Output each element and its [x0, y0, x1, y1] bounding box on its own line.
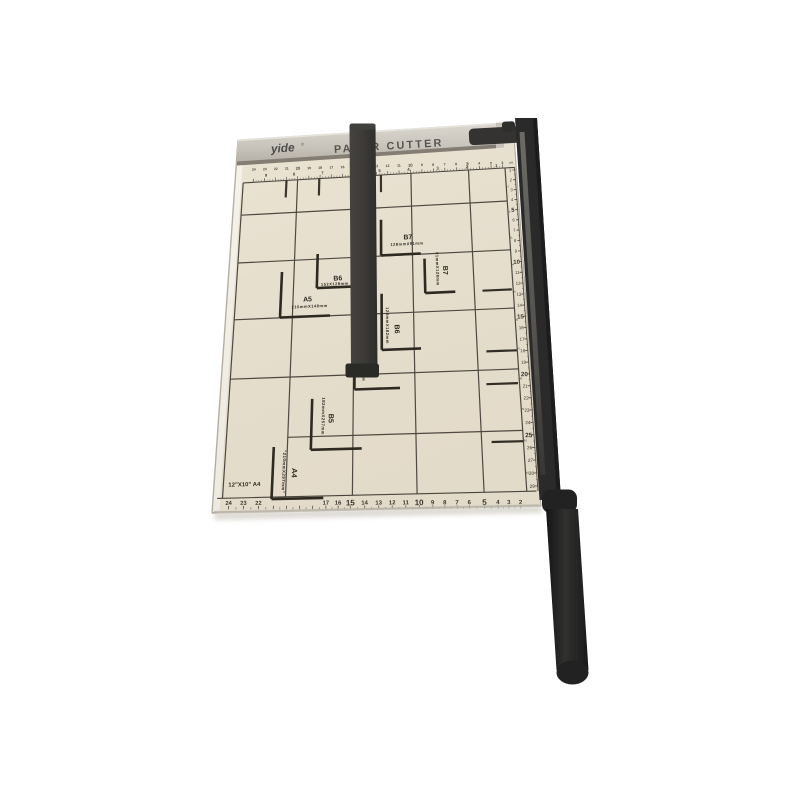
svg-text:21: 21 — [285, 167, 289, 171]
svg-text:91mmX128mm: 91mmX128mm — [435, 252, 441, 286]
svg-text:11: 11 — [397, 164, 401, 168]
svg-text:12”X10” A4: 12”X10” A4 — [228, 482, 261, 489]
svg-text:24: 24 — [525, 420, 531, 425]
svg-text:B7: B7 — [441, 266, 448, 275]
svg-text:13: 13 — [516, 292, 522, 297]
svg-text:27: 27 — [528, 458, 534, 463]
svg-text:15: 15 — [517, 314, 525, 320]
svg-text:2: 2 — [501, 161, 503, 165]
svg-text:B5: B5 — [327, 414, 336, 424]
svg-text:A5: A5 — [303, 296, 312, 303]
svg-text:28: 28 — [529, 471, 535, 476]
svg-text:29: 29 — [530, 484, 536, 490]
svg-text:128mmX182mm: 128mmX182mm — [385, 307, 390, 344]
svg-text:12: 12 — [385, 164, 389, 168]
svg-text:19: 19 — [521, 360, 527, 365]
svg-text:12: 12 — [516, 281, 522, 286]
svg-text:16: 16 — [341, 165, 345, 169]
svg-text:18: 18 — [520, 348, 526, 353]
svg-text:B6: B6 — [393, 324, 401, 333]
svg-text:22: 22 — [274, 167, 278, 171]
svg-text:24: 24 — [252, 167, 256, 171]
svg-text:23: 23 — [263, 167, 267, 171]
svg-text:26: 26 — [527, 445, 533, 450]
svg-text:7: 7 — [444, 162, 446, 166]
svg-text:18: 18 — [318, 166, 322, 170]
svg-text:yide: yide — [270, 140, 296, 156]
svg-text:21: 21 — [523, 384, 529, 389]
svg-text:20: 20 — [521, 371, 529, 378]
svg-text:17: 17 — [519, 336, 525, 341]
svg-text:A4: A4 — [290, 468, 299, 479]
svg-text:8: 8 — [432, 163, 434, 167]
svg-text:cm: cm — [509, 160, 514, 164]
svg-text:9: 9 — [421, 163, 423, 167]
svg-text:17: 17 — [329, 165, 333, 169]
svg-text:23: 23 — [524, 408, 530, 413]
svg-text:22: 22 — [524, 396, 530, 401]
svg-text:182mmX257mm: 182mmX257mm — [320, 397, 326, 435]
svg-text:10: 10 — [513, 260, 521, 266]
svg-text:16: 16 — [519, 325, 525, 330]
svg-text:3: 3 — [490, 161, 492, 165]
svg-text:6: 6 — [455, 162, 457, 166]
svg-text:14: 14 — [517, 303, 523, 308]
svg-text:4: 4 — [478, 162, 480, 166]
svg-text:19: 19 — [307, 166, 311, 170]
